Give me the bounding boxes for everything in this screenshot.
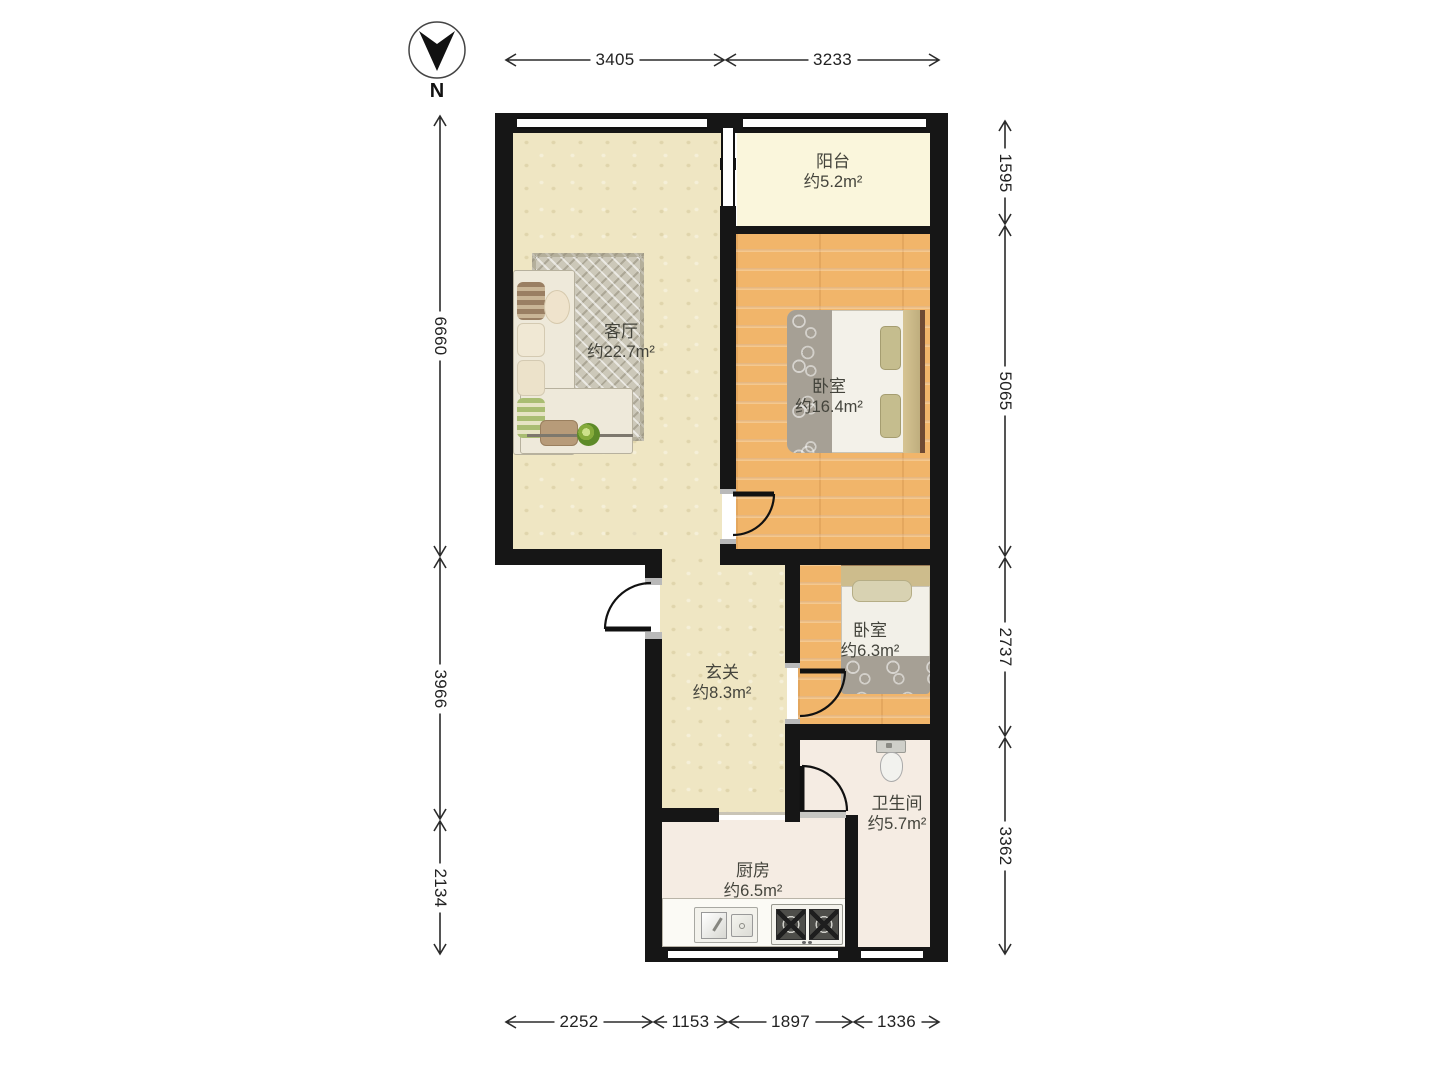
window-living-top	[517, 117, 707, 129]
dimension-label: 2737	[995, 622, 1015, 671]
dimension-label: 2252	[554, 1012, 603, 1032]
room-area: 约5.2m²	[804, 172, 863, 193]
wall-kitchen-bath-divider	[845, 815, 858, 947]
room-name: 卧室	[841, 620, 900, 641]
entrance-door-frame-bottom	[645, 632, 662, 639]
kitchen-entry-threshold	[719, 812, 785, 815]
room-name: 客厅	[587, 321, 655, 342]
room-area: 约6.5m²	[724, 881, 783, 902]
window-bathroom-bottom	[861, 949, 923, 960]
ottoman	[540, 420, 578, 446]
stove	[771, 904, 843, 945]
wall-balcony-pillar	[720, 206, 736, 236]
room-name: 玄关	[693, 662, 752, 683]
wall-hall-left-lower	[645, 637, 662, 962]
compass-icon: N	[409, 22, 465, 102]
room-name: 厨房	[724, 860, 783, 881]
entrance-door-arc	[605, 583, 651, 629]
dimension-label: 5065	[995, 366, 1015, 415]
dimension-label: 3405	[590, 50, 639, 70]
room-area: 约16.4m²	[795, 397, 863, 418]
room-label-second-bedroom: 卧室 约6.3m²	[841, 620, 900, 662]
window-kitchen-bottom	[668, 949, 838, 960]
wall-kitchen-top	[645, 808, 719, 822]
room-area: 约8.3m²	[693, 683, 752, 704]
bedroom1-door-frame-top	[720, 489, 736, 494]
bedroom1-door-frame-bottom	[720, 539, 736, 544]
window-balcony-top	[743, 117, 926, 129]
dimension-label: 1153	[667, 1012, 715, 1032]
entrance-door-frame-top	[645, 578, 662, 585]
sink	[694, 907, 758, 943]
bathroom-door-threshold	[800, 810, 846, 818]
room-label-balcony: 阳台 约5.2m²	[804, 151, 863, 193]
dimension-label: 2134	[430, 863, 450, 912]
compass-north-label: N	[430, 80, 444, 102]
dimension-label: 1897	[766, 1012, 815, 1032]
room-label-living-room: 客厅 约22.7m²	[587, 321, 655, 363]
kitchen-counter	[662, 898, 846, 947]
room-label-kitchen: 厨房 约6.5m²	[724, 860, 783, 902]
toilet	[874, 740, 908, 790]
room-area: 约5.7m²	[868, 814, 927, 835]
room-area: 约6.3m²	[841, 641, 900, 662]
wall-balcony-bottom	[736, 226, 930, 234]
room-area: 约22.7m²	[587, 342, 655, 363]
wall-living-bottom	[495, 549, 662, 565]
floor-plan: N 阳台 约5.2m² 客厅 约22.7m² 卧室 约16.4m² 卧室 约6.…	[0, 0, 1440, 1080]
room-label-master-bedroom: 卧室 约16.4m²	[795, 376, 863, 418]
dimension-label: 6660	[430, 311, 450, 360]
dimension-label: 3233	[808, 50, 857, 70]
wall-bedroom2-left	[785, 565, 800, 663]
window-living-balcony	[721, 128, 735, 206]
room-name: 阳台	[804, 151, 863, 172]
plant	[577, 423, 600, 446]
wall-bedroom2-bottom	[785, 724, 930, 740]
room-label-hallway: 玄关 约8.3m²	[693, 662, 752, 704]
bedroom2-door-frame-bottom	[785, 719, 800, 724]
dimension-label: 1336	[872, 1012, 921, 1032]
wall-bedroom1-bottom	[720, 549, 948, 565]
dimension-label: 1595	[995, 148, 1015, 197]
bedroom2-door-frame-top	[785, 663, 800, 668]
dimension-label: 3362	[995, 821, 1015, 870]
dimension-label: 3966	[430, 664, 450, 713]
room-label-bathroom: 卫生间 约5.7m²	[868, 793, 927, 835]
wall-right	[930, 113, 948, 962]
room-name: 卧室	[795, 376, 863, 397]
wall-left	[495, 113, 513, 565]
wall-bedroom1-left	[720, 236, 736, 489]
room-name: 卫生间	[868, 793, 927, 814]
